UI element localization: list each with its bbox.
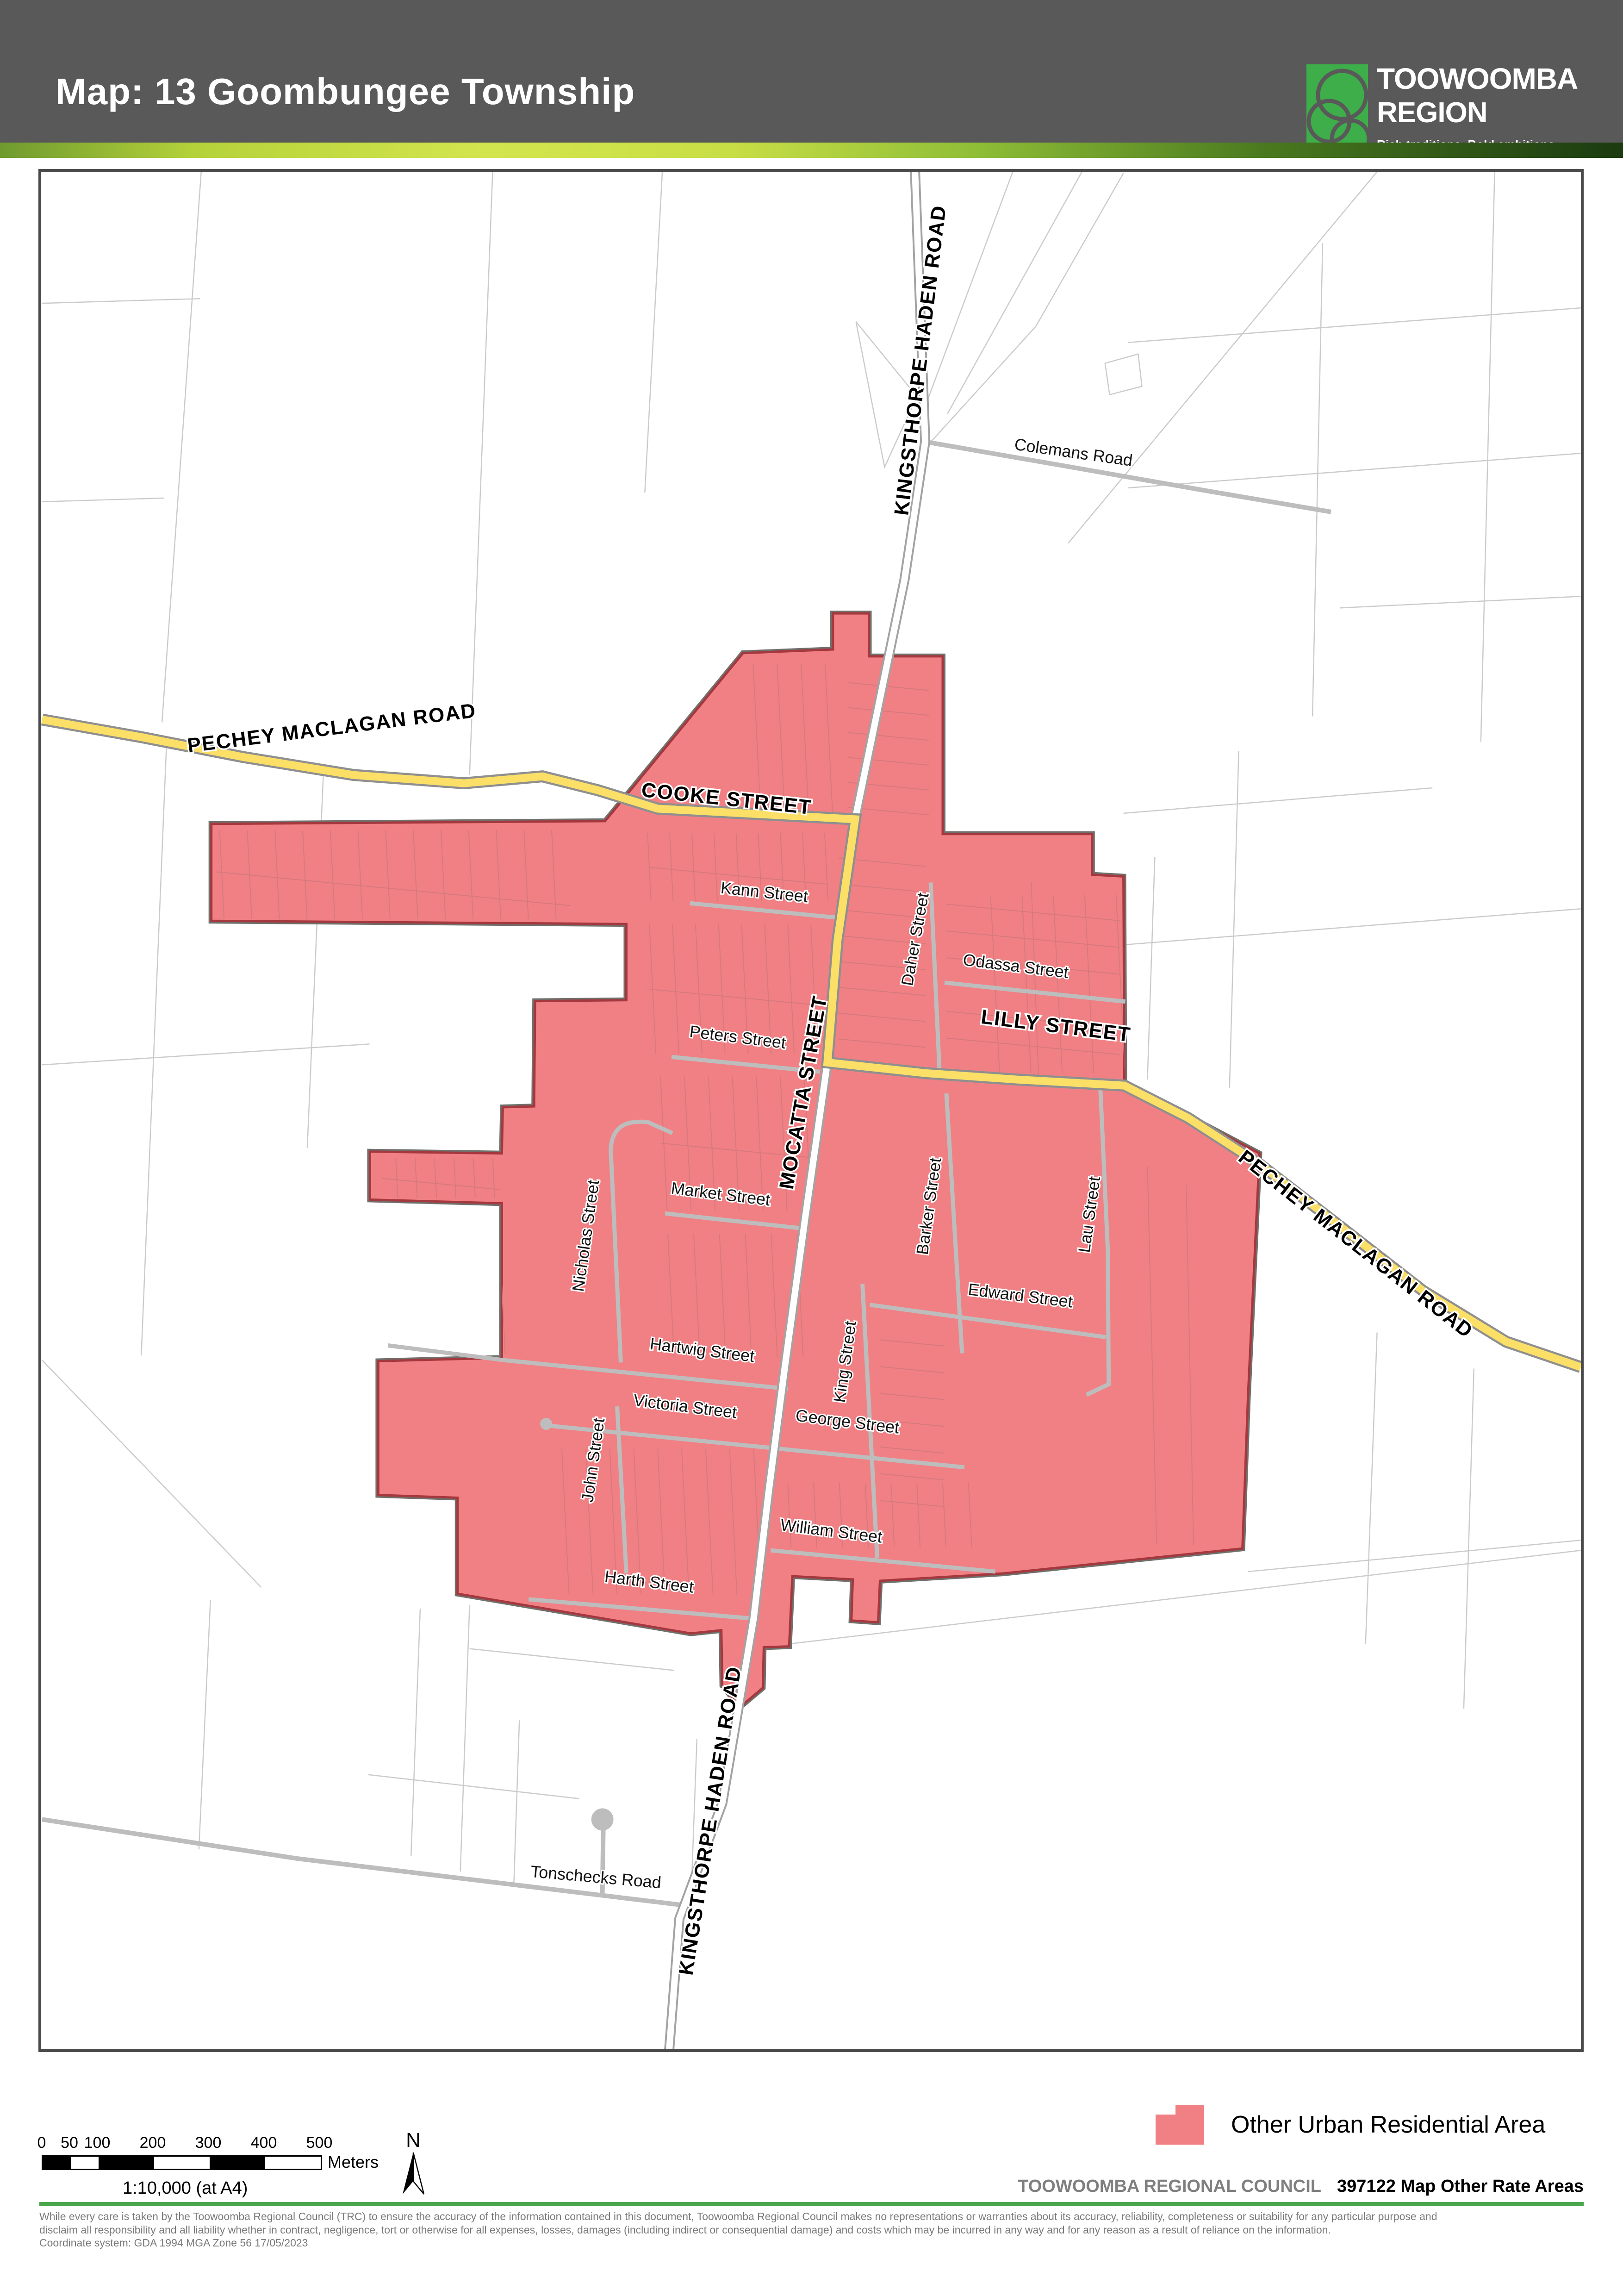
north-arrow-left: [403, 2152, 413, 2194]
footer-line: TOOWOOMBA REGIONAL COUNCIL397122 Map Oth…: [1018, 2177, 1584, 2196]
footer-mapref: 397122 Map Other Rate Areas: [1337, 2177, 1584, 2196]
legend-swatch: [1156, 2105, 1206, 2147]
logo-title: TOOWOOMBA: [1377, 62, 1578, 96]
footer-separator: [39, 2202, 1584, 2206]
page: { "header": { "title": "Map: 13 Goombung…: [0, 0, 1623, 2296]
north-label: N: [406, 2129, 421, 2152]
scale-segment-2: [99, 2157, 154, 2169]
scale-tick-400: 400: [251, 2134, 277, 2152]
map-frame: KINGSTHORPE HADEN ROADColemans RoadPECHE…: [38, 169, 1584, 2052]
scale-tick-200: 200: [140, 2134, 166, 2152]
scale-tick-300: 300: [195, 2134, 222, 2152]
footer-council: TOOWOOMBA REGIONAL COUNCIL: [1018, 2177, 1321, 2196]
scale-segment-1: [71, 2157, 99, 2169]
street-label-pechey-maclagan-road: PECHEY MACLAGAN ROAD: [1234, 1146, 1477, 1343]
scale-segment-5: [265, 2157, 321, 2169]
disclaimer-line-1: While every care is taken by the Toowoom…: [39, 2210, 1594, 2223]
street-label-kingsthorpe-haden-road: KINGSTHORPE HADEN ROAD: [674, 1665, 746, 1977]
cul-de-sac: [591, 1809, 614, 1831]
scale-segment-4: [210, 2157, 265, 2169]
header: Map: 13 Goombungee Township TOOWOOMBA RE…: [0, 0, 1623, 143]
scale-tick-100: 100: [84, 2134, 111, 2152]
north-arrow-right: [413, 2152, 424, 2194]
disclaimer: While every care is taken by the Toowoom…: [39, 2210, 1594, 2250]
logo-subtitle: REGION: [1377, 96, 1487, 130]
street-label-colemans-road: Colemans Road: [1014, 435, 1134, 470]
scale-segments: [42, 2155, 322, 2170]
scale-segment-0: [43, 2157, 71, 2169]
scale-tick-500: 500: [306, 2134, 333, 2152]
scale-tick-50: 50: [61, 2134, 78, 2152]
page-title: Map: 13 Goombungee Township: [56, 70, 635, 113]
scale-ratio: 1:10,000 (at A4): [123, 2178, 248, 2198]
legend-label: Other Urban Residential Area: [1231, 2111, 1545, 2139]
map-canvas: KINGSTHORPE HADEN ROADColemans RoadPECHE…: [41, 172, 1581, 2049]
coordinate-system: Coordinate system: GDA 1994 MGA Zone 56 …: [39, 2236, 1594, 2250]
disclaimer-line-2: disclaim all responsibility and all liab…: [39, 2223, 1594, 2237]
scale-unit: Meters: [328, 2152, 379, 2172]
header-green-band: [0, 143, 1623, 158]
scale-tick-0: 0: [37, 2134, 46, 2152]
victoria-street-bulb: [540, 1418, 552, 1430]
logo-mark: [1306, 64, 1368, 154]
north-arrow: N: [396, 2128, 433, 2200]
street-label-pechey-maclagan-road: PECHEY MACLAGAN ROAD: [186, 699, 478, 757]
logo-swirl-icon: [1306, 64, 1368, 154]
scale-segment-3: [154, 2157, 210, 2169]
